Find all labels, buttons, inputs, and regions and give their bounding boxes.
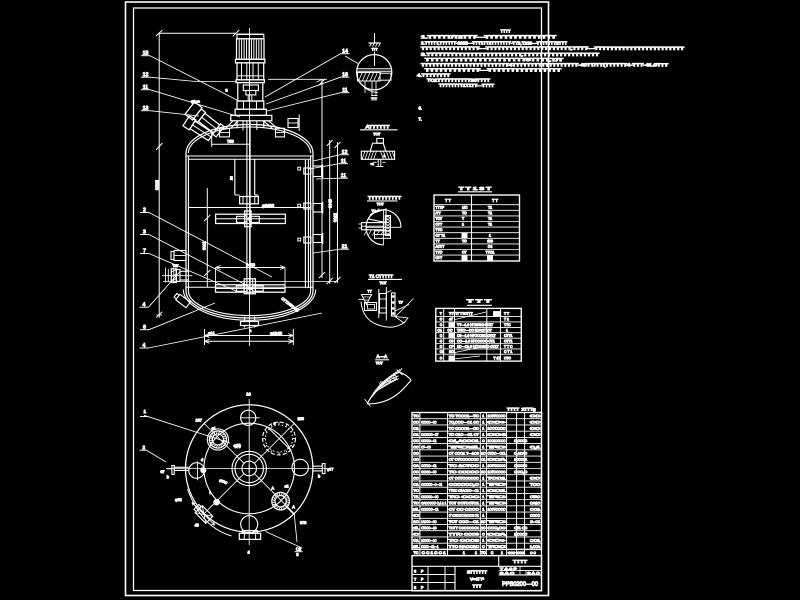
svg-text:СТСС—СТ1: СТСС—СТ1: [487, 451, 505, 455]
svg-text:ТС1: ТС1: [449, 445, 480, 449]
svg-text:1,ССА: 1,ССА: [530, 545, 541, 549]
svg-text:С0: С0: [449, 339, 453, 343]
svg-text:аТ: аТ: [449, 317, 453, 321]
svg-text:a1: a1: [211, 427, 215, 431]
svg-text:СССССС—СТ: СССССС—СТ: [421, 433, 438, 437]
svg-text:Т1: Т1: [413, 495, 419, 499]
svg-text:Т Т С: Т Т С: [504, 345, 513, 349]
svg-text:ТТ: ТТ: [367, 290, 371, 294]
svg-text:ТСТ: ТСТ: [373, 132, 380, 136]
svg-text:1: 1: [413, 507, 419, 511]
svg-text:1С0ТСССС: 1С0ТСССС: [487, 507, 506, 511]
svg-text:СС1: СС1: [530, 539, 540, 543]
svg-text:СТ Т1: СТ Т1: [435, 234, 445, 238]
svg-text:С1: С1: [481, 458, 485, 462]
svg-text:1: 1: [482, 495, 484, 499]
svg-text:/ТТ: /ТТ: [435, 211, 441, 215]
svg-text:ТС: ТС: [481, 551, 486, 555]
svg-text:1.ТТТТТ/Т2ТТТ—ТТТТТТТТТТТТТТТ: 1.ТТТТТ/Т2ТТТ—ТТТТТТТТТТТТТТТ: [421, 34, 557, 39]
svg-text:СС: СС: [413, 451, 419, 455]
svg-text:ТСТТ ССССССС4: ТСТТ ССССССС4: [449, 526, 479, 530]
svg-text:1,СССС: 1,СССС: [514, 532, 528, 536]
svg-text:ТСТ: ТСТ: [377, 202, 384, 206]
svg-text:Т1: Т1: [488, 211, 492, 215]
svg-text:СТАС: СТАС: [530, 495, 541, 499]
svg-text:ТС ТССС1—ТС: ТС ТССС1—ТС: [449, 414, 480, 418]
svg-text:ССС: ССС: [517, 551, 525, 555]
svg-text:ССССС—СС: ССССС—СС: [421, 420, 437, 424]
svg-text:φ1643: φ1643: [270, 331, 283, 336]
svg-text:СТС: СТС: [504, 356, 511, 360]
svg-text:С1,АССС1: С1,АССС1: [449, 439, 479, 443]
svg-text:1: 1: [482, 464, 484, 468]
svg-text:СС: СС: [413, 470, 419, 474]
svg-text:1: 1: [482, 539, 484, 543]
svg-text:АТТТТТТ: АТТТТТТ: [365, 124, 389, 129]
svg-text:СТ ССТСССССС: СТ ССТСССССС: [449, 476, 480, 480]
svg-text:1: 1: [463, 551, 465, 555]
svg-text:СС: СС: [530, 433, 541, 437]
svg-text:1: 1: [482, 501, 484, 505]
svg-text:СТ СТССССССС: СТ СТССССССС: [449, 458, 480, 462]
svg-text:o: o: [273, 422, 275, 426]
svg-text:СС1: СС1: [487, 489, 505, 493]
svg-text:С1: С1: [413, 433, 419, 437]
svg-text:СС: СС: [413, 476, 419, 480]
svg-text:СТ1 СС: СТ1 СС: [514, 526, 528, 530]
svg-text:С1: С1: [440, 350, 444, 354]
svg-text:1: 1: [413, 526, 419, 530]
svg-text:1С: 1С: [481, 451, 486, 455]
svg-text:φ77: φ77: [327, 468, 333, 472]
svg-text:З А С: З А С: [500, 571, 515, 575]
svg-text:СТ—СС: СТ—СС: [421, 445, 431, 449]
svg-text:ТТС: ТТС: [435, 228, 442, 232]
svg-text:07: 07: [160, 470, 164, 474]
svg-text:1: 1: [482, 433, 484, 437]
svg-text:СС: СС: [447, 328, 452, 332]
svg-text:230: 230: [297, 417, 303, 421]
svg-text:СА1С: СА1С: [530, 501, 541, 505]
svg-text:СС1: СС1: [530, 507, 540, 511]
svg-text:16: 16: [246, 391, 251, 396]
svg-text:1: 1: [413, 545, 419, 549]
svg-text:СТССС—1С: СТССС—1С: [421, 526, 437, 530]
svg-text:СССССС—С1: СССССС—С1: [421, 507, 438, 511]
svg-text:ТТС: ТТС: [435, 250, 442, 254]
svg-text:СС+: СС+: [487, 420, 505, 424]
svg-text:ТС: ТС: [487, 495, 507, 499]
svg-text:СССС—С1—1: СССС—С1—1: [421, 545, 438, 549]
svg-text:1СССССС: 1СССССС: [487, 427, 506, 431]
svg-text:СС: СС: [413, 458, 419, 462]
svg-text:ТС: ТС: [413, 501, 419, 505]
svg-text:Т: Т: [440, 312, 442, 316]
svg-text:ССССС—С1: ССССС—С1: [421, 439, 436, 443]
svg-text:ТТС1: ТТС1: [486, 250, 495, 254]
svg-text:ТАТС—СС КСАСГ1СТ: ТАТС—СС КСАСГ1СТ: [457, 328, 492, 332]
svg-text:СТТ1: СТТ1: [504, 339, 512, 343]
svg-text:Т1: Т1: [488, 217, 492, 221]
svg-text:d: d: [201, 458, 203, 462]
svg-text:1С0ТССССС: 1С0ТССССС: [487, 464, 505, 468]
svg-text:ТС СССС1—СС: ТС СССС1—СС: [449, 427, 480, 431]
svg-text:СТ ССС1 Т—1С0: СТ ССС1 Т—1С0: [449, 451, 479, 455]
svg-text:СС4: СС4: [487, 433, 505, 437]
svg-text:ТС С1С—С1 СТ: ТС С1С—С1 СТ: [449, 433, 479, 437]
svg-text:1: 1: [482, 427, 484, 431]
svg-text:ТТТТ: ТТТТ: [507, 408, 520, 412]
svg-text:СТТ: СТТ: [435, 256, 443, 260]
svg-text:САССССС С,1 1 1: САССССС С,1 1 1: [421, 501, 446, 505]
svg-text:С Т 1: С Т 1: [504, 350, 512, 354]
svg-text:6.: 6.: [418, 106, 421, 111]
svg-text:ТС: ТС: [413, 489, 419, 493]
svg-text:ТСТ: ТСТ: [435, 217, 443, 221]
svg-text:ТСС: ТСС: [530, 483, 541, 487]
svg-text:З: З: [414, 570, 416, 574]
svg-text:1: 1: [482, 489, 484, 493]
svg-text:ТТТ: ТТТ: [372, 47, 378, 51]
svg-text:1: 1: [482, 420, 484, 424]
svg-text:1/С: 1/С: [462, 206, 468, 210]
svg-text:З: З: [414, 586, 416, 590]
svg-text:Т ТТСТТТ: Т ТТСТТТ: [457, 312, 473, 316]
svg-text:ТТТС ССС0: ТТТС ССС0: [449, 532, 479, 536]
svg-text:0015: 0015: [154, 180, 159, 190]
svg-text:2Б: 2Б: [230, 176, 234, 180]
svg-text:СС: СС: [413, 439, 419, 443]
svg-text:φ22: φ22: [175, 498, 182, 502]
svg-text:1АССС—СС: 1АССС—СС: [421, 520, 437, 524]
svg-text:1: 1: [482, 445, 484, 449]
svg-text:1С: 1С: [481, 520, 486, 524]
svg-text:СС: СС: [530, 476, 541, 480]
svg-text:ТС: ТС: [414, 551, 419, 555]
svg-text:СТТ: СТТ: [435, 222, 443, 226]
svg-text:7.: 7.: [418, 117, 421, 122]
svg-text:СС: СС: [413, 420, 419, 424]
svg-text:РРВ0200—00: РРВ0200—00: [502, 581, 539, 588]
svg-text:1С: 1С: [413, 520, 419, 524]
svg-text:ТТТР: ТТТР: [435, 206, 444, 210]
svg-text:Т Т: Т Т: [492, 199, 498, 203]
svg-text:φ2400: φ2400: [262, 203, 275, 208]
svg-text:С1: С1: [413, 483, 419, 487]
svg-text:С,1: С,1: [530, 445, 540, 449]
svg-text:СС—1.0 НГССССС-СТ1: СС—1.0 НГССССС-СТ1: [457, 339, 495, 343]
svg-text:0012: 0012: [333, 212, 338, 222]
svg-text:ТТ—1.0 НГ20592-ТТ1Т: ТТ—1.0 НГ20592-ТТ1Т: [457, 323, 493, 327]
svg-text:ССА: ССА: [487, 458, 507, 462]
svg-text:2ТТТg: 2ТТТg: [521, 408, 535, 412]
svg-text:ТТТТТТТТТТТТТТТ—ТТТТТТТТТТТТТТ: ТТТТТТТТТТТТТТТ—ТТТТТТТТТТТТТТТТТТТТТТ,Т…: [421, 46, 685, 51]
svg-text:СССССС,С: СССССС,С: [449, 483, 480, 487]
svg-text:ТС ССС0: ТС ССС0: [449, 539, 479, 543]
svg-text:1СС1ССССС: 1СС1ССССС: [487, 439, 505, 443]
svg-text:ССС: ССС: [508, 551, 516, 555]
svg-text:ТТТТТТТТТТ: ТТТТТТТТТТ: [368, 195, 401, 200]
svg-text:С1: С1: [413, 427, 419, 431]
svg-text:ТС: ТС: [371, 209, 376, 213]
svg-text:С2: С2: [296, 546, 302, 551]
svg-text:СССССС—С—С1: СССССС—С—С1: [421, 483, 442, 487]
svg-text:d: d: [247, 551, 249, 555]
svg-text:1СССС1: 1СССС1: [514, 458, 527, 462]
svg-text:С С: С С: [530, 551, 536, 555]
svg-text:З А С: З А С: [527, 571, 540, 575]
svg-text:ТСТ ССТССТС1: ТСТ ССТССТС1: [449, 501, 479, 505]
svg-text:СС+: СС+: [487, 539, 505, 543]
svg-text:ТС: ТС: [487, 501, 507, 505]
svg-text:ТТТТ: ТТТТ: [500, 28, 511, 33]
svg-text:1СТССССС: 1СТССССС: [487, 470, 506, 474]
svg-text:ТС: ТС: [487, 520, 507, 524]
svg-text:Т1: Т1: [488, 206, 492, 210]
svg-text:ТТСС С1АССС—С1: ТТСС С1АССС—С1: [449, 489, 479, 493]
svg-text:Т Т: Т Т: [504, 312, 509, 316]
svg-text:С,СССС: С,СССС: [514, 439, 528, 443]
svg-text:ТСТ: ТСТ: [376, 361, 383, 365]
svg-text:1: 1: [482, 514, 484, 518]
svg-text:ТС: ТС: [413, 414, 419, 418]
svg-text:ТС: ТС: [487, 483, 507, 487]
svg-text:С,АСАС: С,АСАС: [514, 451, 528, 455]
svg-text:ТС,ССС—С1 СС: ТС,ССС—С1 СС: [449, 420, 480, 424]
svg-text:137: 137: [195, 419, 201, 423]
svg-text:С С 1 С С 1: С С 1 С С 1: [422, 551, 446, 555]
svg-text:С: С: [491, 551, 494, 555]
svg-text:СА: СА: [413, 464, 419, 468]
svg-text:V=4ТТ²: V=4ТТ²: [470, 576, 485, 581]
svg-text:1: 1: [482, 507, 484, 511]
svg-text:ССТСС—С1: ССТСС—С1: [421, 464, 436, 468]
svg-text:С1: С1: [437, 328, 441, 332]
svg-text:ТС ССССС: ТС ССССС: [449, 470, 480, 474]
svg-text:1С: 1С: [481, 526, 486, 530]
svg-text:0045: 0045: [328, 198, 333, 208]
svg-text:1С0ТСССС: 1С0ТСССС: [487, 414, 506, 418]
svg-text:1: 1: [501, 551, 503, 555]
svg-text:ТСТ ССС—С1: ТСТ ССС—С1: [449, 520, 479, 524]
svg-text:ТТС: ТТС: [504, 323, 511, 327]
svg-text:1: 1: [462, 222, 464, 226]
svg-text:1: 1: [482, 476, 484, 480]
svg-text:ТС: ТС: [462, 211, 467, 215]
svg-text:1400: 1400: [246, 262, 256, 267]
svg-text:1: 1: [482, 483, 484, 487]
svg-text:1: 1: [489, 234, 491, 238]
svg-text:Т 1: Т 1: [504, 317, 509, 321]
svg-text:ТСС: ТСС: [487, 545, 506, 549]
svg-text:ТС: ТС: [462, 239, 467, 243]
svg-text:ТТТ: ТТТ: [472, 583, 482, 588]
svg-text:ТТТ: ТТТ: [371, 97, 377, 101]
svg-text:Т1 СТТТТТ: Т1 СТТТТТ: [369, 274, 393, 279]
svg-text:СТ СС0СССС НАСССС0 СН1: СТ СС0СССС НАСССС0 СН1: [449, 514, 479, 518]
svg-text:ТСС1: ТСС1: [487, 476, 505, 480]
svg-text:110: 110: [487, 239, 493, 243]
svg-text:ТТС НАСС1С: ТТС НАСС1С: [449, 545, 480, 549]
svg-text:С4: С4: [488, 245, 493, 249]
svg-text:С1: С1: [413, 539, 419, 543]
svg-text:1: 1: [506, 328, 508, 332]
svg-text:СС: СС: [530, 414, 541, 418]
svg-text:СА—СС1: СА—СС1: [530, 520, 540, 524]
svg-text:Т Т: Т Т: [445, 199, 451, 203]
svg-text:378: 378: [300, 521, 306, 525]
svg-text:ТС ССС: ТС ССС: [449, 495, 480, 499]
svg-text:1СССС—СС: 1СССС—СС: [421, 539, 437, 543]
svg-text:750: 750: [227, 139, 234, 144]
svg-text:Т Т 1 З Т: Т Т 1 З Т: [459, 186, 492, 191]
svg-text:СС: СС: [530, 427, 541, 431]
svg-text:С,АСССС: С,АСССС: [514, 464, 527, 468]
svg-text:ТТТТТТТТ1Т1ТТ—ТТТТ: ТТТТТТТТ1Т1ТТ—ТТТТ: [439, 83, 495, 88]
svg-text:c2: c2: [284, 485, 288, 489]
svg-text:ТС: ТС: [487, 445, 507, 449]
svg-text:СССССС—СС: СССССС—СС: [421, 495, 439, 499]
svg-text:СТ СС СССС: СТ СС СССС: [449, 507, 480, 511]
svg-text:ССА: ССА: [487, 532, 507, 536]
svg-text:ССС,СС: ССС,СС: [487, 526, 506, 530]
svg-text:Т Т Т: Т Т Т: [467, 298, 492, 303]
svg-text:×1: ×1: [370, 162, 374, 166]
svg-text:АСТТ: АСТТ: [435, 245, 445, 249]
svg-text:ТСТ: ТСТ: [379, 281, 386, 285]
svg-text:СТТ1: СТТ1: [504, 334, 512, 338]
svg-text:1: 1: [482, 414, 484, 418]
svg-text:ССС,С: ССС,С: [514, 470, 528, 474]
svg-text:ТС 1СТСС: ТС 1СТСС: [449, 464, 480, 468]
svg-text:1С: 1С: [481, 470, 486, 474]
svg-text:СС: СС: [530, 420, 541, 424]
svg-text:1: 1: [475, 551, 477, 555]
svg-text:С0—1.0 НГССС2С-СТ1Т: С0—1.0 НГССС2С-СТ1Т: [457, 334, 496, 338]
svg-text:ЗТТТТТТ: ЗТТТТТТ: [467, 569, 487, 574]
svg-text:1: 1: [143, 409, 146, 414]
svg-text:45: 45: [194, 524, 198, 528]
svg-text:Т 1Т: Т 1Т: [493, 356, 500, 360]
svg-text:A—A: A—A: [376, 354, 388, 359]
svg-text:СССС: СССС: [530, 514, 541, 518]
svg-text:2: 2: [142, 445, 145, 450]
svg-text:СР: СР: [449, 345, 454, 349]
svg-text:ССССС—СС: ССССС—СС: [421, 470, 437, 474]
svg-text:Т1: Т1: [488, 222, 492, 226]
svg-text:ТТТТ: ТТТТ: [513, 559, 528, 564]
svg-text:h: h: [250, 329, 252, 333]
svg-text:q(h): q(h): [233, 443, 241, 448]
svg-text:1С1: 1С1: [449, 350, 455, 354]
svg-text:СС: СС: [413, 445, 419, 449]
